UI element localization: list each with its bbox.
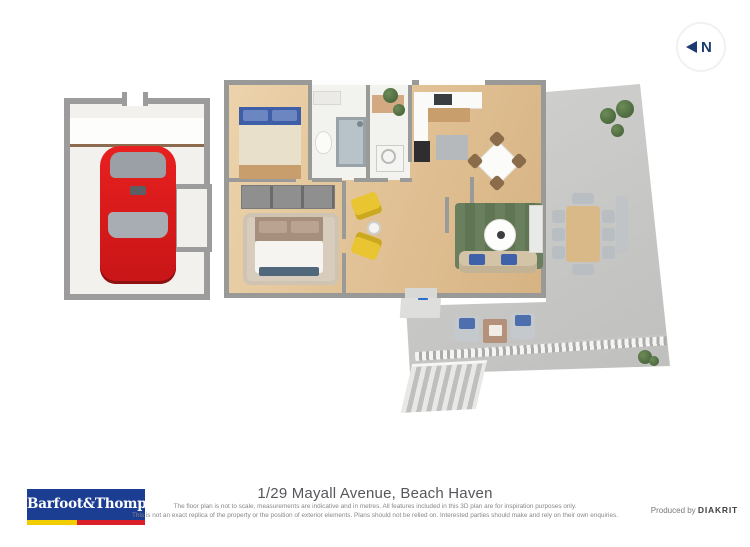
outdoor-dining-table [566, 206, 600, 262]
bed-foot-chest [239, 165, 301, 179]
floorplan-image: N [0, 0, 750, 547]
garage-door [70, 118, 204, 144]
car-rear-window [110, 152, 166, 178]
plant-icon [611, 124, 624, 137]
outdoor-bench [616, 196, 628, 254]
outdoor-chair [602, 228, 615, 241]
chair-cushion [459, 318, 475, 329]
pillow [291, 221, 319, 233]
red-car [100, 146, 176, 284]
compass-icon: N [676, 22, 726, 72]
yellow-armchair [350, 191, 383, 221]
kitchen-island [436, 135, 468, 160]
outdoor-chair [602, 246, 615, 259]
wall [366, 85, 370, 180]
bathroom-vanity [313, 91, 341, 105]
wall [408, 85, 412, 162]
pillow [259, 221, 287, 233]
wall [400, 178, 412, 182]
wall [470, 177, 474, 203]
garage-door-notch [122, 92, 148, 106]
bed-throw [259, 267, 319, 276]
wall [342, 253, 346, 293]
producer-name: DIAKRIT [698, 505, 738, 515]
sofa-cushion [501, 254, 517, 265]
fridge [414, 141, 430, 162]
yellow-armchair [350, 231, 383, 261]
car-sunroof [130, 186, 146, 195]
bed-mattress [239, 125, 301, 165]
storage-room [172, 184, 212, 252]
window [419, 80, 485, 85]
outdoor-chair [602, 210, 615, 223]
toilet [315, 131, 332, 154]
outdoor-chair [572, 264, 594, 275]
shower-head [357, 121, 363, 127]
plant-icon [600, 108, 616, 124]
pillow [272, 110, 297, 121]
sofa-cushion [469, 254, 485, 265]
property-address: 1/29 Mayall Avenue, Beach Haven [0, 485, 750, 502]
washer-door [381, 149, 396, 164]
produced-by-label: Produced by [651, 506, 696, 515]
wall [354, 178, 388, 182]
wardrobe [241, 185, 335, 209]
outdoor-chair [552, 210, 565, 223]
table-decor [497, 231, 505, 239]
disclaimer-line-1: The floor plan is not to scale, measurem… [0, 503, 750, 511]
wall [308, 85, 312, 180]
logo-stripe [27, 520, 145, 525]
outdoor-chair [572, 193, 594, 204]
plant-icon [649, 356, 659, 366]
cooktop [434, 94, 452, 105]
produced-by: Produced by DIAKRIT [651, 505, 738, 515]
compass-label: N [701, 39, 712, 56]
outdoor-chair [552, 246, 565, 259]
logo-stripe-red [77, 520, 145, 525]
side-table [367, 221, 381, 235]
plant-icon [383, 88, 398, 103]
plant-icon [616, 100, 634, 118]
house-floorplan [224, 80, 546, 298]
window [312, 80, 412, 85]
logo-stripe-yellow [27, 520, 77, 525]
plant-icon [393, 104, 405, 116]
wall [312, 178, 342, 182]
kitchen-bench [428, 108, 470, 122]
outdoor-chair [552, 228, 565, 241]
car-windshield [108, 212, 168, 238]
caption: 1/29 Mayall Avenue, Beach Haven The floo… [0, 485, 750, 519]
wall [445, 197, 449, 233]
entrance-doorway [405, 288, 437, 298]
deck-steps [401, 360, 487, 413]
disclaimer-line-2: This is not an exact replica of the prop… [0, 512, 750, 520]
pillow [243, 110, 268, 121]
chair-cushion [515, 315, 531, 326]
tv-cabinet [529, 205, 543, 253]
wall [342, 181, 346, 239]
north-arrow-icon [686, 41, 697, 53]
table-tray [489, 325, 502, 336]
